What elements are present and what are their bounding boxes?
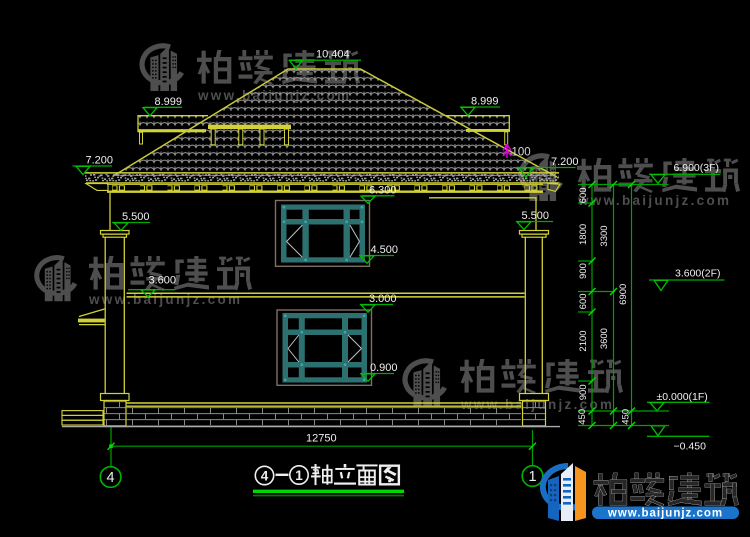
svg-text:7.200: 7.200 xyxy=(551,156,579,168)
svg-text:600: 600 xyxy=(578,293,589,309)
svg-text:www.baijunjz.com: www.baijunjz.com xyxy=(607,507,723,519)
svg-text:4.500: 4.500 xyxy=(371,244,399,256)
svg-text:0.900: 0.900 xyxy=(370,362,398,374)
svg-text:3.600: 3.600 xyxy=(149,275,177,287)
svg-text:8.999: 8.999 xyxy=(155,96,183,108)
svg-text:900: 900 xyxy=(578,384,589,400)
svg-text:1800: 1800 xyxy=(578,224,589,245)
svg-text:3300: 3300 xyxy=(599,225,610,246)
svg-text:450: 450 xyxy=(621,409,632,425)
svg-text:12750: 12750 xyxy=(306,433,337,445)
svg-text:3600: 3600 xyxy=(599,328,610,349)
svg-text:3.000: 3.000 xyxy=(369,293,397,305)
svg-text:−0.450: −0.450 xyxy=(674,441,707,453)
svg-text:www.baijunjz.com: www.baijunjz.com xyxy=(577,193,731,208)
svg-text:6.300: 6.300 xyxy=(369,185,397,197)
svg-text:450: 450 xyxy=(577,409,588,425)
svg-text:www.baijunjz.com: www.baijunjz.com xyxy=(88,292,242,307)
svg-text:4: 4 xyxy=(107,470,115,486)
svg-text:5.500: 5.500 xyxy=(522,210,550,222)
svg-text:6.900(3F): 6.900(3F) xyxy=(674,162,720,174)
svg-text:2100: 2100 xyxy=(578,330,589,351)
svg-text:5.500: 5.500 xyxy=(122,211,150,223)
svg-text:100: 100 xyxy=(512,147,531,159)
svg-text:1: 1 xyxy=(295,468,303,483)
svg-text:600: 600 xyxy=(578,187,589,203)
svg-text:3.600(2F): 3.600(2F) xyxy=(675,268,721,280)
svg-text:8.999: 8.999 xyxy=(471,96,499,108)
svg-text:900: 900 xyxy=(578,263,589,279)
svg-text:1: 1 xyxy=(528,469,536,485)
svg-text:6900: 6900 xyxy=(618,284,629,305)
svg-text:±0.000(1F): ±0.000(1F) xyxy=(657,391,708,403)
svg-text:10.404: 10.404 xyxy=(316,49,350,61)
svg-text:4: 4 xyxy=(261,469,269,484)
svg-text:7.200: 7.200 xyxy=(86,155,114,167)
